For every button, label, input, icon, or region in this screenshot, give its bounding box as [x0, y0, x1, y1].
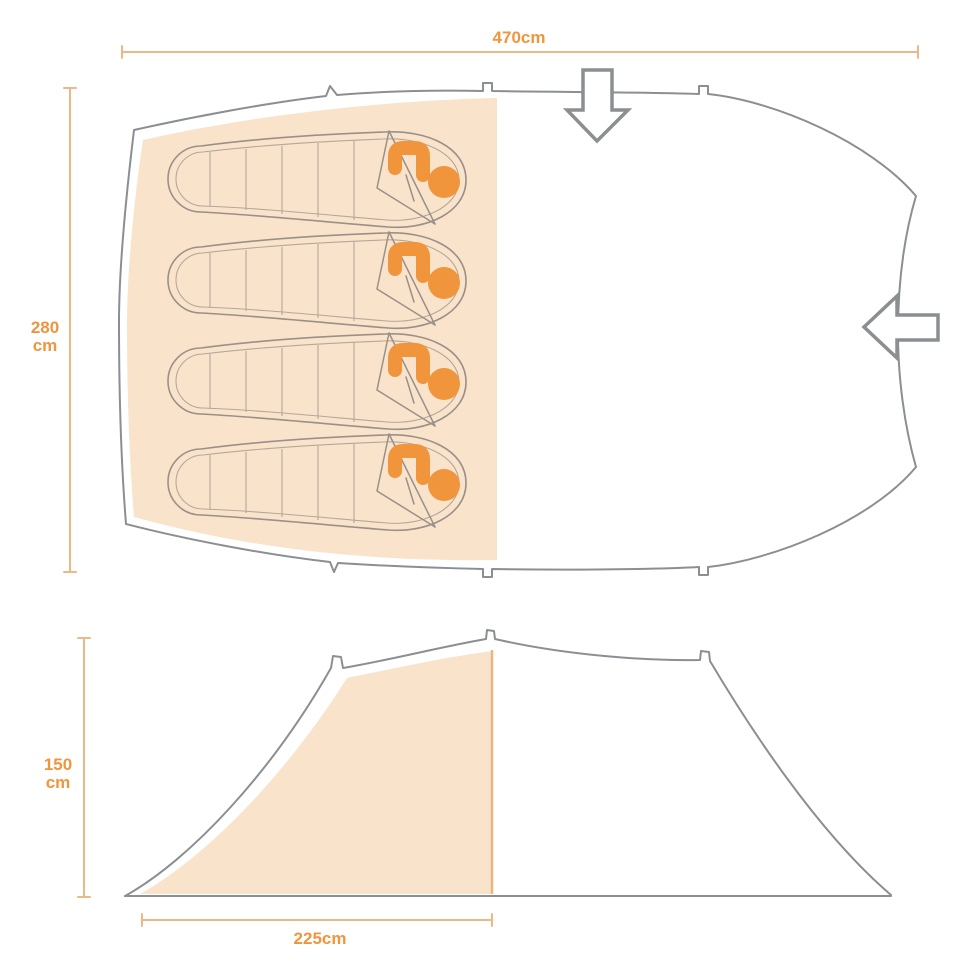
diagram-svg: 470cm 280 cm 150 cm 225cm	[0, 0, 968, 968]
total-width-value-label: 280	[31, 318, 59, 337]
total-width-unit-label: cm	[33, 336, 58, 355]
tent-top-view	[119, 70, 938, 577]
dimension-height: 150 cm	[44, 638, 90, 897]
height-value-label: 150	[44, 755, 72, 774]
dimension-total-length: 470cm	[122, 28, 918, 58]
bedroom-length-label: 225cm	[294, 929, 347, 948]
dimension-total-width: 280 cm	[31, 88, 76, 572]
arrow-left-icon	[864, 296, 938, 358]
tent-side-view	[125, 630, 891, 896]
dimension-bedroom-length: 225cm	[142, 914, 492, 948]
tent-dimensions-diagram: 470cm 280 cm 150 cm 225cm	[0, 0, 968, 968]
total-length-label: 470cm	[493, 28, 546, 47]
height-unit-label: cm	[46, 773, 71, 792]
bedroom-shade-side-view	[140, 651, 492, 894]
arrow-down-icon	[567, 70, 628, 141]
